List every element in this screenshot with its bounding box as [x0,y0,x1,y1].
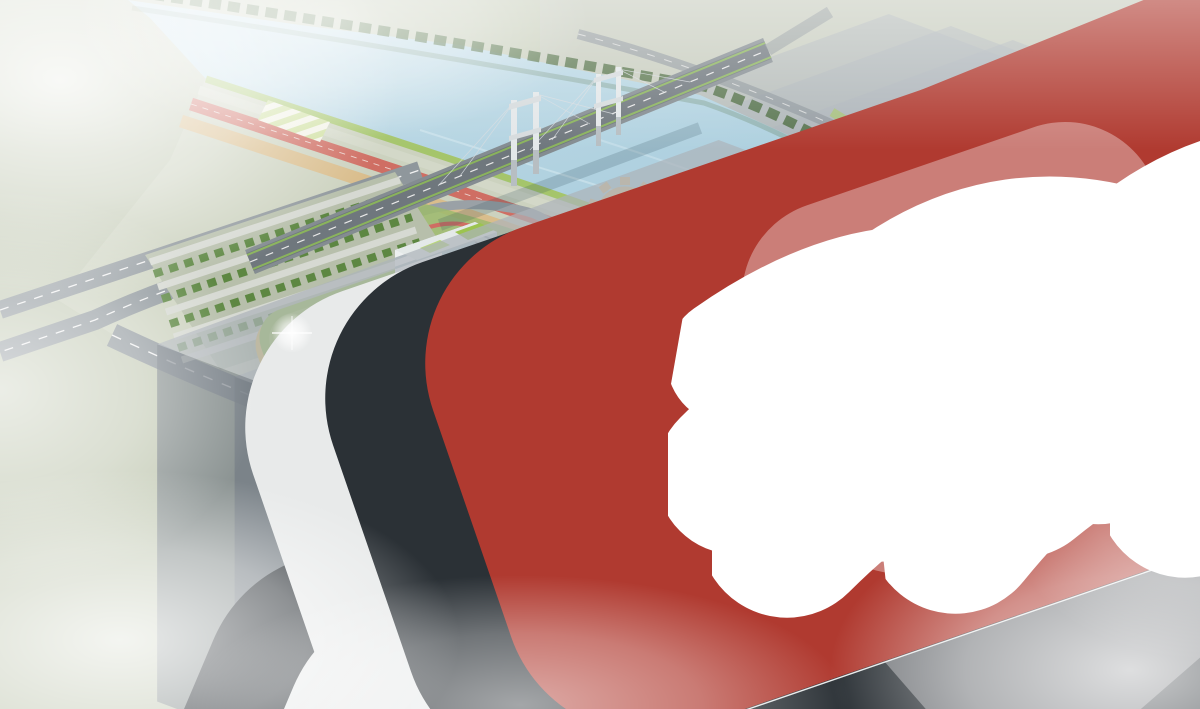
rendering-canvas [0,0,1200,709]
sun-glint [272,313,312,353]
aerial-rendering [0,0,1200,709]
